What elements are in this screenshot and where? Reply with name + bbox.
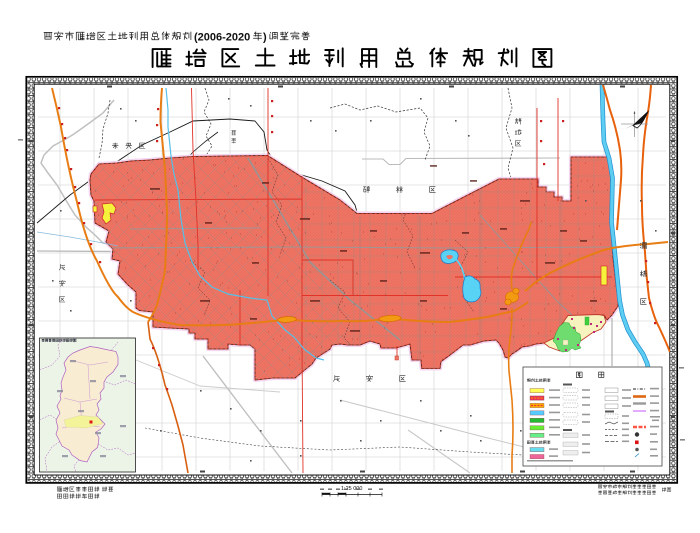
svg-text:(2006-2020: (2006-2020 [194,32,250,44]
svg-text:): ) [263,32,267,44]
